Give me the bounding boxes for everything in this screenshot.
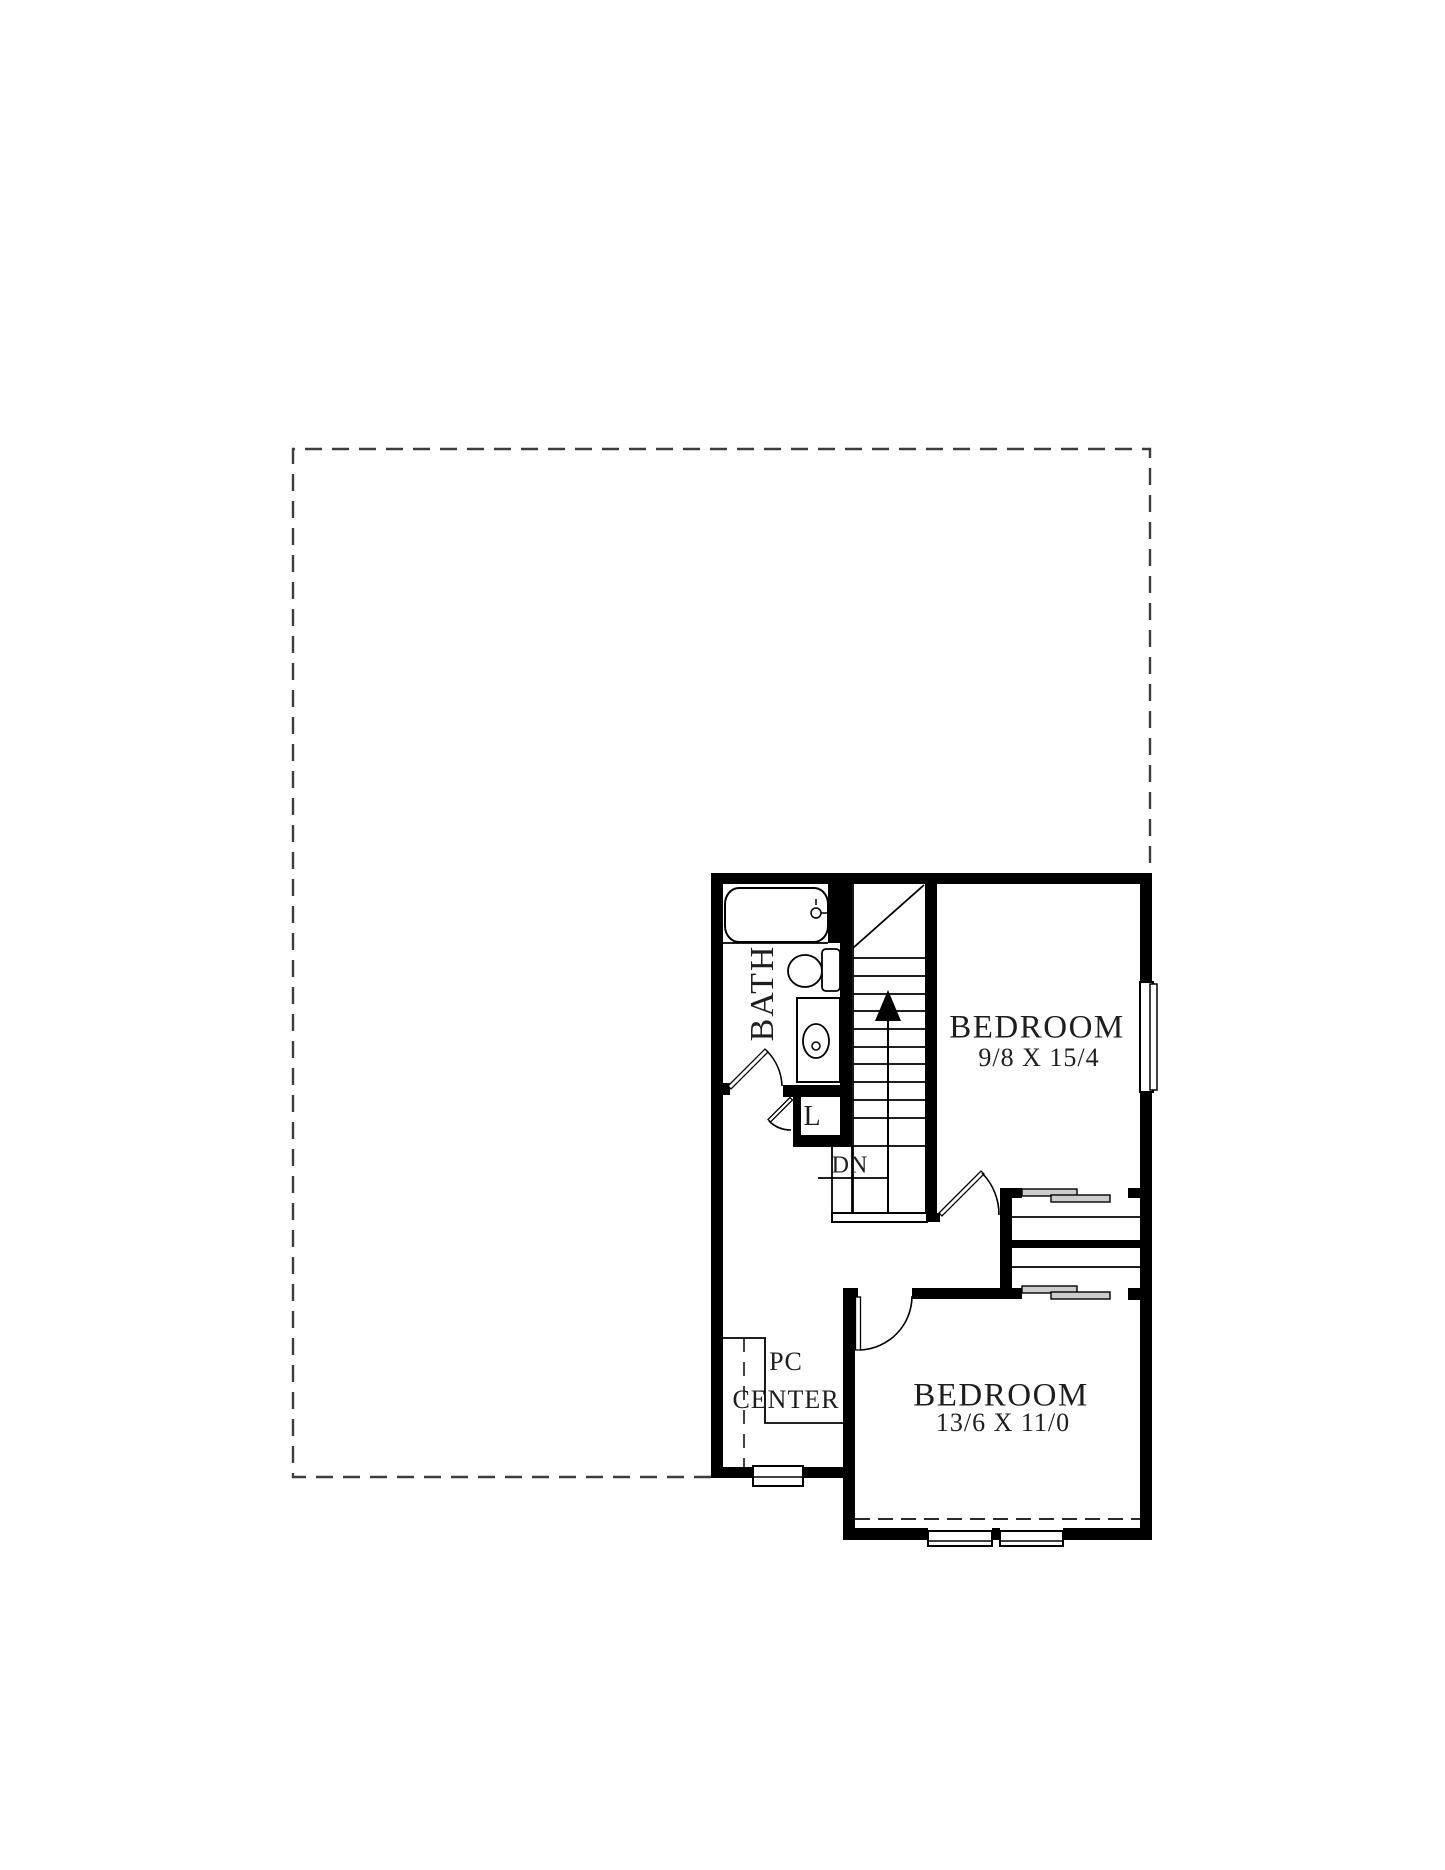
pc-center-window [753, 1466, 803, 1486]
closet-bottom-sliding-doors [1022, 1286, 1110, 1299]
bedroom1-right-window [1140, 982, 1157, 1092]
stair-up-arrow-icon [875, 990, 901, 1213]
bath-label: BATH [744, 945, 782, 1042]
linen-closet-label: L [803, 1101, 820, 1133]
floor-plan-canvas: BATH L DN BEDROOM 9/8 X 15/4 BEDROOM 13/… [0, 0, 1445, 1870]
sink-vanity [797, 998, 840, 1082]
linen-closet-door [768, 1098, 793, 1131]
bedroom1-label: BEDROOM [949, 1010, 1125, 1047]
bedroom1-door [939, 1171, 999, 1216]
pc-center-label-line1: PC [769, 1347, 803, 1377]
bedroom1-dimensions: 9/8 X 15/4 [978, 1043, 1099, 1073]
bedroom2-window-left [928, 1531, 992, 1546]
bath-door [728, 1049, 782, 1089]
toilet [788, 949, 840, 991]
pc-center-label-line2: CENTER [732, 1385, 839, 1415]
closet-top-sliding-doors [1022, 1189, 1110, 1202]
stair-direction-label: DN [832, 1153, 869, 1180]
stair-landing-edge [832, 1213, 927, 1222]
bedroom2-door [856, 1296, 913, 1350]
bedroom2-window-right [1000, 1531, 1063, 1546]
floor-plan-drawing [0, 0, 1445, 1870]
bathtub [723, 888, 829, 943]
bedroom2-dimensions: 13/6 X 11/0 [936, 1408, 1070, 1438]
stair-break-line [853, 885, 924, 948]
